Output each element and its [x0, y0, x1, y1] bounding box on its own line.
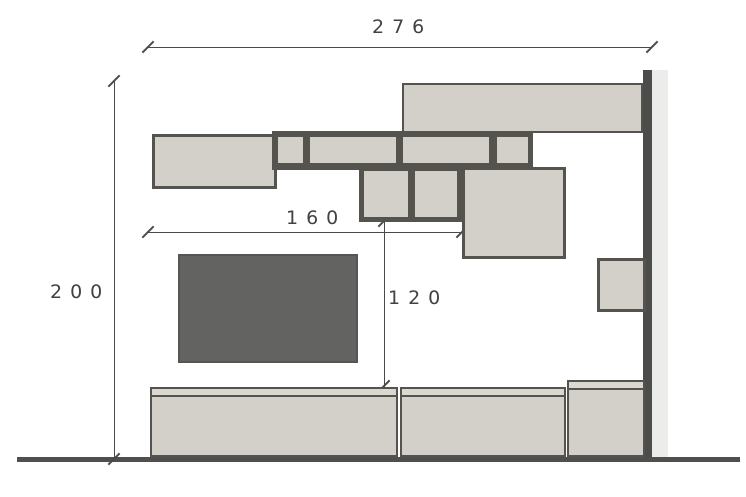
top-wall-cabinet: [402, 83, 643, 133]
base-cabinet-right: [567, 380, 645, 457]
left-wall-cabinet: [152, 134, 277, 189]
shelf-row: [272, 131, 533, 170]
box-compartment: [415, 171, 457, 217]
wall-shadow-strip: [652, 70, 668, 458]
elevation-drawing-canvas: 276 200 160 120: [0, 0, 746, 497]
box-compartment: [364, 171, 408, 217]
open-box-unit: [359, 167, 462, 222]
base-cabinet-top: [152, 389, 396, 397]
base-cabinet-center: [400, 387, 566, 457]
base-cabinet-top: [402, 389, 564, 397]
dim-line-total-height: [114, 81, 115, 460]
side-wall-cabinet: [597, 258, 646, 312]
shelf-compartment: [278, 137, 303, 163]
dim-label-total-width: 276: [372, 16, 432, 38]
dim-label-inner-height: 120: [388, 287, 448, 309]
square-wall-cabinet: [462, 167, 566, 259]
base-cabinet-left: [150, 387, 398, 457]
dim-line-inner-height: [384, 221, 385, 387]
floor-line: [17, 457, 740, 462]
base-cabinet-top: [569, 382, 643, 390]
shelf-compartment: [497, 137, 528, 163]
shelf-compartment: [310, 137, 396, 163]
dim-label-total-height: 200: [50, 281, 110, 303]
dim-label-inner-width: 160: [286, 207, 346, 229]
tv-screen: [178, 254, 358, 363]
shelf-compartment: [403, 137, 489, 163]
dim-line-total-width: [148, 47, 652, 48]
dim-line-inner-width: [148, 232, 462, 233]
